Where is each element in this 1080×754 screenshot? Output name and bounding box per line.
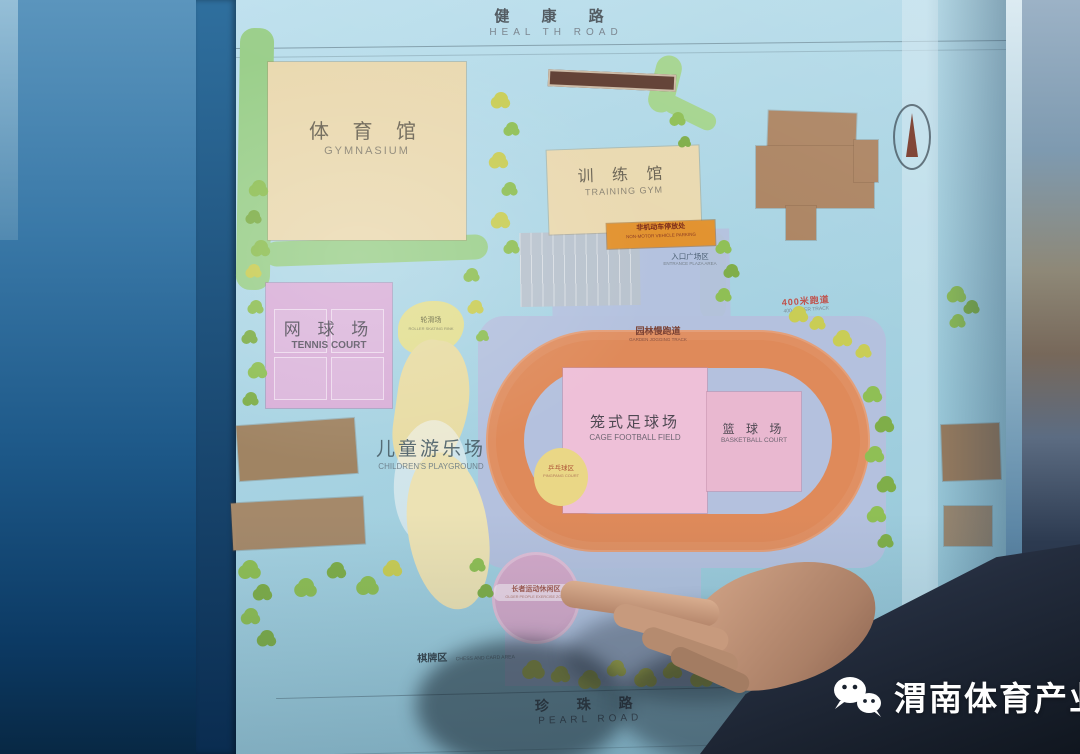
track-400-label: 400米跑道 400-METER TRACK xyxy=(750,292,863,317)
health-road-label: 健 康 路 HEAL TH ROAD xyxy=(426,8,686,39)
tree-icon xyxy=(250,300,262,312)
neighbor-building xyxy=(944,506,992,546)
tree-icon xyxy=(672,112,684,124)
tree-icon xyxy=(251,362,265,376)
tree-icon xyxy=(298,578,314,594)
tennis-court: 网 球 场 TENNIS COURT xyxy=(266,283,392,408)
tree-icon xyxy=(244,330,256,342)
tree-icon xyxy=(506,240,518,252)
neighbor-building xyxy=(786,206,816,240)
tree-icon xyxy=(836,330,850,344)
tree-icon xyxy=(386,560,400,574)
neighbor-building xyxy=(231,497,365,551)
tree-icon xyxy=(812,316,824,328)
pingpong-zone: 乒乓球区 PINGPANG COURT xyxy=(534,448,588,506)
compass-north-icon xyxy=(893,104,931,170)
road-line xyxy=(236,40,1006,49)
children-playground-label: 儿童游乐场 CHILDREN'S PLAYGROUND xyxy=(336,438,526,472)
tree-icon xyxy=(242,560,258,576)
tree-icon xyxy=(478,330,488,340)
tree-icon xyxy=(466,268,478,280)
tree-icon xyxy=(680,136,690,146)
tree-icon xyxy=(494,212,508,226)
tree-icon xyxy=(260,630,274,644)
tree-icon xyxy=(880,476,894,490)
tree-icon xyxy=(880,534,892,546)
tree-icon xyxy=(866,386,880,400)
neighbor-building xyxy=(767,110,856,149)
tree-icon xyxy=(256,584,270,598)
tree-icon xyxy=(244,608,258,622)
watermark-text: 渭南体育产业 xyxy=(894,672,1080,720)
basketball-court: 篮 球 场 BASKETBALL COURT xyxy=(707,392,801,491)
bike-parking-tag: 非机动车停放处 NON-MOTOR VEHICLE PARKING xyxy=(607,220,716,249)
green-path xyxy=(661,93,719,134)
tree-icon xyxy=(248,264,260,276)
tree-icon xyxy=(878,416,892,430)
tree-icon xyxy=(504,182,516,194)
road-line xyxy=(236,49,1006,58)
tree-icon xyxy=(245,392,257,404)
tree-icon xyxy=(950,286,964,300)
tree-icon xyxy=(470,300,482,312)
tree-icon xyxy=(868,446,882,460)
gymnasium-building: 体 育 馆 GYMNASIUM xyxy=(268,62,466,240)
tree-icon xyxy=(360,576,376,592)
pingpong-label: 乒乓球区 PINGPANG COURT xyxy=(534,465,588,478)
tree-icon xyxy=(952,314,964,326)
tree-icon xyxy=(506,122,518,134)
gymnasium-label: 体 育 馆 GYMNASIUM xyxy=(268,120,466,159)
roller-skating-label: 轮滑场 ROLLER SKATING RINK xyxy=(398,317,464,331)
neighbor-building xyxy=(236,418,358,481)
tennis-label: 网 球 场 TENNIS COURT xyxy=(266,319,392,353)
sky-sliver xyxy=(0,0,18,240)
training-gym-label: 训 练 馆 TRAINING GYM xyxy=(547,163,700,200)
tree-icon xyxy=(254,240,268,254)
tree-icon xyxy=(792,306,806,320)
neighbor-building xyxy=(941,423,1001,481)
jogging-track-label: 园林慢跑道 GARDEN JOGGING TRACK xyxy=(588,326,728,343)
tree-icon xyxy=(858,344,870,356)
wechat-icon xyxy=(832,674,884,718)
basketball-label: 篮 球 场 BASKETBALL COURT xyxy=(707,422,801,445)
watermark: 渭南体育产业 xyxy=(832,672,1080,720)
tree-icon xyxy=(966,300,978,312)
neighbor-building xyxy=(854,140,878,182)
tree-icon xyxy=(494,92,508,106)
tree-icon xyxy=(718,240,730,252)
tree-icon xyxy=(480,584,492,596)
tree-icon xyxy=(870,506,884,520)
tree-icon xyxy=(492,152,506,166)
tree-icon xyxy=(726,264,738,276)
tree-icon xyxy=(248,210,260,222)
photo-of-park-map-sign: 健 康 路 HEAL TH ROAD 体 育 馆 GYMNASIUM 训 练 xyxy=(0,0,1080,754)
tree-icon xyxy=(330,562,344,576)
cage-football-label: 笼式足球场 CAGE FOOTBALL FIELD xyxy=(563,414,707,443)
sign-frame-left-edge xyxy=(196,0,236,754)
cage-football-field: 笼式足球场 CAGE FOOTBALL FIELD xyxy=(563,368,707,513)
tree-icon xyxy=(472,558,484,570)
tree-icon xyxy=(252,180,266,194)
tree-icon xyxy=(718,288,730,300)
